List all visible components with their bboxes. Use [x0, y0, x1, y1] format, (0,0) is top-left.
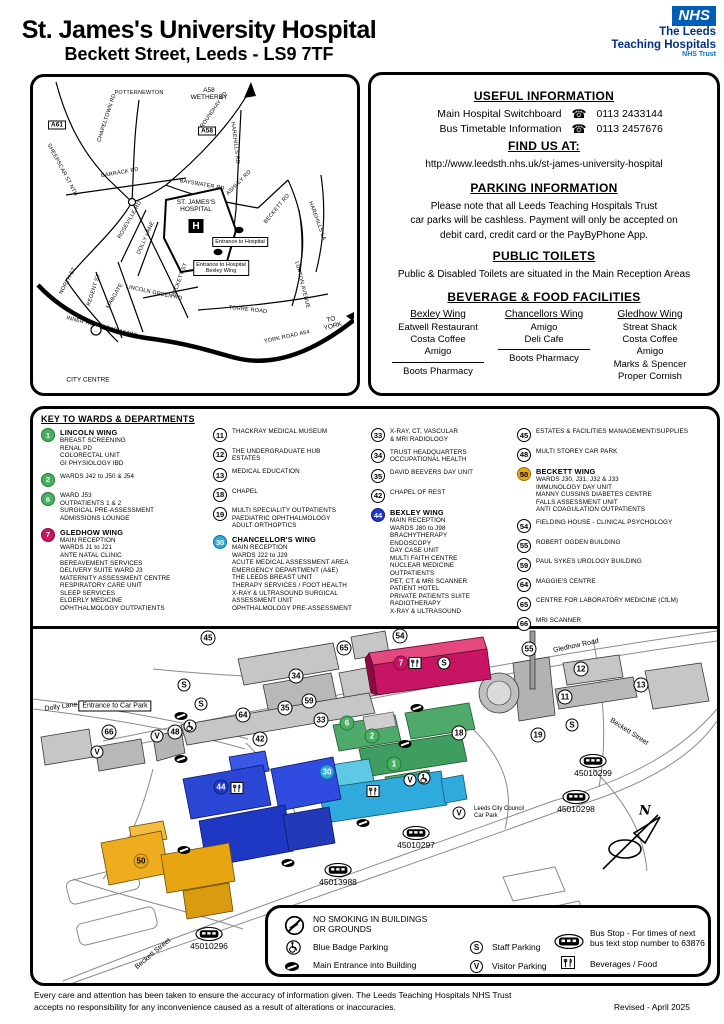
- key-entry: 55 ROBERT OGDEN BUILDING: [517, 539, 711, 553]
- map-number-marker: 65: [337, 641, 352, 656]
- bus-icon: [195, 927, 223, 941]
- food-title: BEVERAGE & FOOD FACILITIES: [379, 290, 709, 304]
- staff-parking-label: Staff Parking: [492, 943, 541, 953]
- visitor-parking-icon: V: [470, 960, 483, 973]
- key-number-badge: 64: [517, 578, 531, 592]
- key-departments: WARD J53 OUTPATIENTS 1 & 2 SURGICAL PRE-…: [60, 492, 154, 522]
- key-entry: 30 CHANCELLOR'S WING MAIN RECEPTION WARD…: [213, 535, 371, 612]
- key-departments: CHAPEL OF REST: [390, 489, 445, 497]
- bus-stop-number: 45013988: [319, 877, 357, 887]
- key-departments: BREAST SCREENING RENAL PD COLORECTAL UNI…: [60, 437, 126, 467]
- food-icon: [231, 782, 244, 794]
- key-title: KEY TO WARDS & DEPARTMENTS: [41, 414, 709, 424]
- map-number-marker: 11: [558, 690, 573, 705]
- map-number-marker: 1: [387, 757, 402, 772]
- compass-icon: [603, 815, 660, 869]
- key-departments: THACKRAY MEDICAL MUSEUM: [232, 428, 327, 436]
- map-number-marker: 48: [168, 725, 183, 740]
- key-departments: PAUL SYKES UROLOGY BUILDING: [536, 558, 642, 566]
- bus-icon: [402, 826, 430, 840]
- key-wing-title: BECKETT WING: [536, 467, 652, 476]
- area-road-map: POTTERNEWTONA58 WETHERBYA61A58CHAPELTOWN…: [30, 74, 360, 396]
- key-entry: 13 MEDICAL EDUCATION: [213, 468, 371, 482]
- page-footer: Every care and attention has been taken …: [34, 990, 690, 1014]
- key-departments: MAGGIE'S CENTRE: [536, 578, 596, 586]
- key-departments: THE UNDERGRADUATE HUB ESTATES: [232, 448, 320, 463]
- key-departments: MAIN RECEPTION WARDS J1 to J21 ANTE NATA…: [60, 537, 170, 612]
- food-icon: [367, 785, 380, 797]
- bus-stop-number: 45010298: [557, 804, 595, 814]
- key-entry: 44 BEXLEY WING MAIN RECEPTION WARDS J80 …: [371, 508, 517, 615]
- trust-name: The Leeds: [611, 26, 716, 39]
- key-entry: 6 WARD J53 OUTPATIENTS 1 & 2 SURGICAL PR…: [41, 492, 213, 522]
- key-number-badge: 33: [371, 428, 385, 442]
- map-number-marker: 44: [214, 780, 229, 795]
- parking-text: Please note that all Leeds Teaching Hosp…: [379, 200, 709, 244]
- bus-stop-number: 45010299: [574, 768, 612, 778]
- bus-stop-marker: 45010298: [557, 790, 595, 814]
- useful-information-title: USEFUL INFORMATION: [379, 89, 709, 103]
- key-departments: MAIN RECEPTION WARDS J22 to J29 ACUTE ME…: [232, 544, 352, 612]
- parking-marker: V: [151, 730, 164, 743]
- key-wing-title: CHANCELLOR'S WING: [232, 535, 352, 544]
- main-entrance-icon: [175, 712, 188, 720]
- phone-row: Bus Timetable Information ☎ 0113 2457676: [379, 123, 709, 135]
- road-map-label: ST. JAMES'S HOSPITAL: [177, 199, 215, 213]
- map-number-marker: 33: [314, 713, 329, 728]
- food-icon: [409, 657, 422, 669]
- key-departments: MRI SCANNER: [536, 617, 581, 625]
- map-number-marker: 50: [134, 854, 149, 869]
- key-number-badge: 12: [213, 448, 227, 462]
- road-map-label: A58: [198, 127, 216, 136]
- key-number-badge: 59: [517, 558, 531, 572]
- map-number-marker: 55: [522, 642, 537, 657]
- key-departments: X-RAY, CT, VASCULAR & MRI RADIOLOGY: [390, 428, 458, 443]
- area-useful-information: USEFUL INFORMATION Main Hospital Switchb…: [368, 72, 720, 396]
- key-departments: MEDICAL EDUCATION: [232, 468, 300, 476]
- key-entry: 34 TRUST HEADQUARTERS OCCUPATIONAL HEALT…: [371, 449, 517, 464]
- map-number-marker: 35: [278, 701, 293, 716]
- bus-stop-marker: 45010296: [190, 927, 228, 951]
- key-entry: 12 THE UNDERGRADUATE HUB ESTATES: [213, 448, 371, 463]
- key-departments: FIELDING HOUSE - CLINICAL PSYCHOLOGY: [536, 519, 672, 527]
- map-legend: NO SMOKING IN BUILDINGS OR GROUNDS Blue …: [265, 905, 711, 977]
- key-departments: MULTI SPECIALITY OUTPATIENTS PAEDIATRIC …: [232, 507, 336, 530]
- map-number-marker: 6: [340, 716, 355, 731]
- key-departments: ESTATES & FACILITIES MANAGEMENT/SUPPLIES: [536, 428, 688, 436]
- main-entrance-icon: [175, 755, 188, 763]
- key-wing-title: LINCOLN WING: [60, 428, 126, 437]
- road-map-label: Entrance to Hospital: [212, 237, 268, 247]
- page-subtitle: Beckett Street, Leeds - LS9 7TF: [14, 44, 384, 65]
- key-entry: 1 LINCOLN WING BREAST SCREENING RENAL PD…: [41, 428, 213, 467]
- key-number-badge: 2: [41, 473, 55, 487]
- map-number-marker: 42: [253, 732, 268, 747]
- bus-stop-marker: 45013988: [319, 863, 357, 887]
- website-url[interactable]: http://www.leedsth.nhs.uk/st-james-unive…: [379, 158, 709, 173]
- key-entry: 64 MAGGIE'S CENTRE: [517, 578, 711, 592]
- key-number-badge: 6: [41, 492, 55, 506]
- main-entrance-legend-icon: [285, 962, 299, 971]
- page-header: St. James's University Hospital Beckett …: [0, 0, 724, 70]
- key-entry: 33 X-RAY, CT, VASCULAR & MRI RADIOLOGY: [371, 428, 517, 443]
- road-map-drawing: [36, 80, 354, 390]
- find-us-title: FIND US AT:: [379, 139, 709, 153]
- parking-marker: S: [178, 679, 191, 692]
- map-number-marker: 18: [452, 726, 467, 741]
- key-wing-title: GLEDHOW WING: [60, 528, 170, 537]
- road-map-label: A61: [48, 121, 66, 130]
- main-entrance-label: Main Entrance into Building: [313, 961, 416, 971]
- key-number-badge: 30: [213, 535, 227, 549]
- key-departments: MAIN RECEPTION WARDS J80 to J98 BRACHYTH…: [390, 517, 470, 615]
- key-number-badge: 50: [517, 467, 531, 481]
- beverage-column: Gledhow Wing Streat Shack Costa Coffee A…: [597, 309, 703, 384]
- bus-legend-icon: [554, 934, 584, 949]
- map-number-marker: 45: [201, 631, 216, 646]
- key-entry: 54 FIELDING HOUSE - CLINICAL PSYCHOLOGY: [517, 519, 711, 533]
- key-entry: 50 BECKETT WING WARDS J30, J31, J32 & J3…: [517, 467, 711, 514]
- parking-marker: S: [566, 719, 579, 732]
- key-entry: 18 CHAPEL: [213, 488, 371, 502]
- blue-badge-legend-icon: [286, 940, 301, 955]
- road-map-label: POTTERNEWTON: [114, 90, 163, 96]
- campus-map: 4565545512131134593533644276648181962130…: [33, 629, 717, 983]
- key-number-badge: 45: [517, 428, 531, 442]
- map-number-marker: 13: [634, 678, 649, 693]
- beverage-column: Bexley Wing Eatwell Restaurant Costa Cof…: [385, 309, 491, 384]
- public-toilets-title: PUBLIC TOILETS: [379, 249, 709, 263]
- key-entry: 65 CENTRE FOR LABORATORY MEDICINE (CfLM): [517, 597, 711, 611]
- main-entrance-icon: [411, 704, 424, 712]
- no-smoking-icon: [284, 915, 305, 936]
- wing-outlets: Eatwell Restaurant Costa Coffee Amigo: [385, 322, 491, 359]
- key-departments: ROBERT OGDEN BUILDING: [536, 539, 620, 547]
- map-number-marker: 30: [320, 765, 335, 780]
- key-number-badge: 1: [41, 428, 55, 442]
- parking-title: PARKING INFORMATION: [379, 181, 709, 195]
- key-entry: 7 GLEDHOW WING MAIN RECEPTION WARDS J1 t…: [41, 528, 213, 612]
- main-entrance-icon: [399, 740, 412, 748]
- key-departments: DAVID BEEVERS DAY UNIT: [390, 469, 473, 477]
- key-number-badge: 48: [517, 448, 531, 462]
- key-number-badge: 13: [213, 468, 227, 482]
- phone-icon: ☎: [572, 108, 587, 120]
- key-number-badge: 11: [213, 428, 227, 442]
- wing-outlets: Amigo Deli Cafe: [491, 322, 597, 347]
- main-entrance-icon: [357, 819, 370, 827]
- phone-icon: ☎: [572, 123, 587, 135]
- wing-name: Gledhow Wing: [617, 309, 682, 320]
- key-wing-title: BEXLEY WING: [390, 508, 470, 517]
- parking-marker: V: [91, 746, 104, 759]
- key-departments: CHAPEL: [232, 488, 258, 496]
- key-entry: 11 THACKRAY MEDICAL MUSEUM: [213, 428, 371, 442]
- key-departments: MULTI STOREY CAR PARK: [536, 448, 617, 456]
- key-entry: 19 MULTI SPECIALITY OUTPATIENTS PAEDIATR…: [213, 507, 371, 530]
- wing-outlets-secondary: Boots Pharmacy: [498, 349, 589, 364]
- bus-icon: [324, 863, 352, 877]
- phone-number: 0113 2457676: [596, 123, 686, 135]
- area-key-and-map: KEY TO WARDS & DEPARTMENTS 1 LINCOLN WIN…: [30, 406, 720, 986]
- wing-outlets: Streat Shack Costa Coffee Amigo Marks & …: [597, 322, 703, 384]
- key-number-badge: 65: [517, 597, 531, 611]
- nhs-logo: NHS The Leeds Teaching Hospitals NHS Tru…: [611, 6, 716, 58]
- key-number-badge: 42: [371, 489, 385, 503]
- wing-name: Bexley Wing: [410, 309, 466, 320]
- page-title: St. James's University Hospital: [14, 16, 384, 45]
- key-entry: 35 DAVID BEEVERS DAY UNIT: [371, 469, 517, 483]
- bus-stop-marker: 45010299: [574, 754, 612, 778]
- key-number-badge: 7: [41, 528, 55, 542]
- key-entry: 59 PAUL SYKES UROLOGY BUILDING: [517, 558, 711, 572]
- staff-parking-icon: S: [470, 941, 483, 954]
- no-smoking-label: NO SMOKING IN BUILDINGS OR GROUNDS: [313, 915, 427, 935]
- parking-marker: S: [195, 698, 208, 711]
- key-section: KEY TO WARDS & DEPARTMENTS 1 LINCOLN WIN…: [33, 409, 717, 629]
- phone-row: Main Hospital Switchboard ☎ 0113 2433144: [379, 108, 709, 120]
- parking-marker: S: [438, 657, 451, 670]
- bus-icon: [579, 754, 607, 768]
- parking-marker: V: [404, 774, 417, 787]
- key-entry: 45 ESTATES & FACILITIES MANAGEMENT/SUPPL…: [517, 428, 711, 442]
- map-number-marker: 7: [394, 656, 409, 671]
- nhs-logo-icon: NHS: [672, 6, 716, 26]
- key-number-badge: 18: [213, 488, 227, 502]
- key-entry: 42 CHAPEL OF REST: [371, 489, 517, 503]
- road-map-label: H: [189, 219, 204, 233]
- key-departments: TRUST HEADQUARTERS OCCUPATIONAL HEALTH: [390, 449, 467, 464]
- key-number-badge: 54: [517, 519, 531, 533]
- main-entrance-icon: [178, 846, 191, 854]
- map-label: Entrance to Car Park: [78, 701, 151, 712]
- map-number-marker: 59: [302, 694, 317, 709]
- map-label: Leeds City Council Car Park: [474, 806, 524, 820]
- key-entry: 2 WARDS J42 to J50 & J54: [41, 473, 213, 487]
- key-number-badge: 34: [371, 449, 385, 463]
- bus-stop-label: Bus Stop - For times of next bus text st…: [590, 929, 705, 949]
- key-departments: WARDS J30, J31, J32 & J33 IMMUNOLOGY DAY…: [536, 476, 652, 514]
- bus-stop-number: 45010296: [190, 941, 228, 951]
- map-number-marker: 19: [531, 728, 546, 743]
- wing-outlets-secondary: Boots Pharmacy: [392, 362, 483, 377]
- key-entry: 48 MULTI STOREY CAR PARK: [517, 448, 711, 462]
- key-number-badge: 55: [517, 539, 531, 553]
- road-map-label: CITY CENTRE: [66, 377, 109, 384]
- disclaimer-text: Every care and attention has been taken …: [34, 990, 690, 1014]
- key-number-badge: 19: [213, 507, 227, 521]
- beverage-column: Chancellors Wing Amigo Deli Cafe Boots P…: [491, 309, 597, 384]
- map-number-marker: 2: [365, 729, 380, 744]
- key-departments: WARDS J42 to J50 & J54: [60, 473, 134, 481]
- map-label: N: [639, 804, 651, 819]
- key-number-badge: 35: [371, 469, 385, 483]
- beverage-columns: Bexley Wing Eatwell Restaurant Costa Cof…: [379, 309, 709, 384]
- wing-name: Chancellors Wing: [505, 309, 583, 320]
- blue-badge-icon: [184, 720, 197, 733]
- main-entrance-icon: [282, 859, 295, 867]
- blue-badge-icon: [418, 772, 431, 785]
- key-departments: CENTRE FOR LABORATORY MEDICINE (CfLM): [536, 597, 678, 605]
- map-number-marker: 54: [393, 629, 408, 644]
- food-label: Beverages / Food: [590, 960, 657, 970]
- public-toilets-text: Public & Disabled Toilets are situated i…: [379, 268, 709, 283]
- map-number-marker: 64: [236, 708, 251, 723]
- phone-number: 0113 2433144: [596, 108, 686, 120]
- blue-badge-label: Blue Badge Parking: [313, 943, 388, 953]
- visitor-parking-label: Visitor Parking: [492, 962, 547, 972]
- parking-marker: V: [453, 807, 466, 820]
- map-number-marker: 12: [574, 662, 589, 677]
- road-map-label: Entrance to Hospital Bexley Wing: [193, 260, 249, 276]
- map-number-marker: 34: [289, 669, 304, 684]
- bus-stop-marker: 45010297: [397, 826, 435, 850]
- bus-icon: [562, 790, 590, 804]
- key-number-badge: 44: [371, 508, 385, 522]
- revised-date: Revised - April 2025: [614, 1002, 690, 1014]
- bus-stop-number: 45010297: [397, 840, 435, 850]
- map-number-marker: 66: [102, 725, 117, 740]
- food-legend-icon: [561, 956, 575, 969]
